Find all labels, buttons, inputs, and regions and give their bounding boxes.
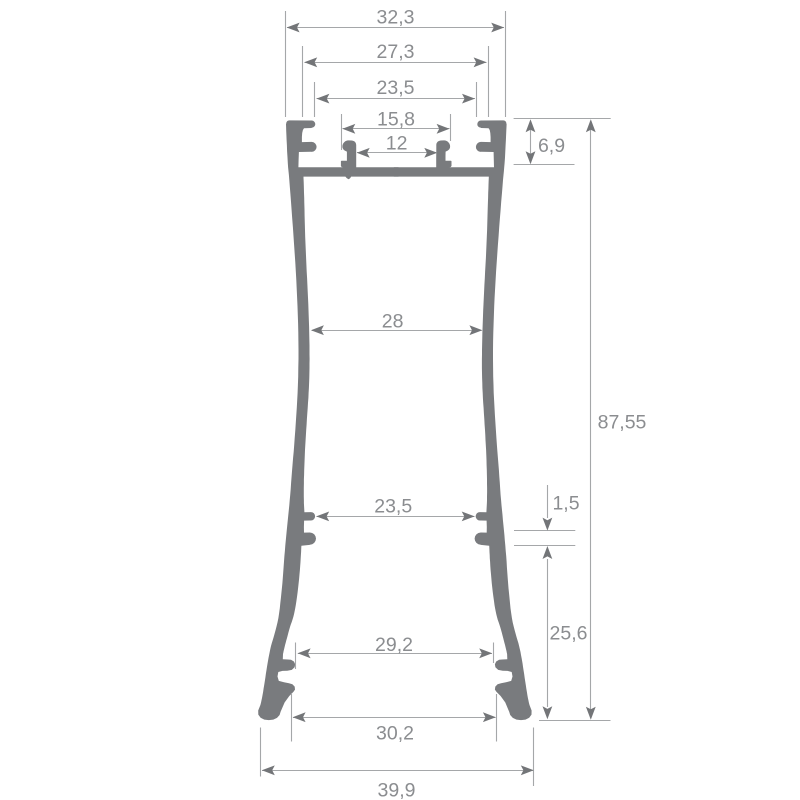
svg-text:27,3: 27,3 <box>377 41 415 63</box>
svg-text:12: 12 <box>386 133 408 155</box>
svg-text:23,5: 23,5 <box>374 496 412 518</box>
svg-text:6,9: 6,9 <box>538 135 565 157</box>
svg-text:87,55: 87,55 <box>598 412 647 434</box>
svg-text:23,5: 23,5 <box>377 77 415 99</box>
svg-text:32,3: 32,3 <box>377 7 415 29</box>
svg-text:15,8: 15,8 <box>377 109 415 131</box>
svg-text:25,6: 25,6 <box>550 623 588 645</box>
svg-text:1,5: 1,5 <box>552 493 579 515</box>
svg-text:29,2: 29,2 <box>375 634 413 656</box>
svg-text:39,9: 39,9 <box>378 779 416 800</box>
svg-text:30,2: 30,2 <box>376 722 414 744</box>
svg-text:28: 28 <box>382 310 404 332</box>
